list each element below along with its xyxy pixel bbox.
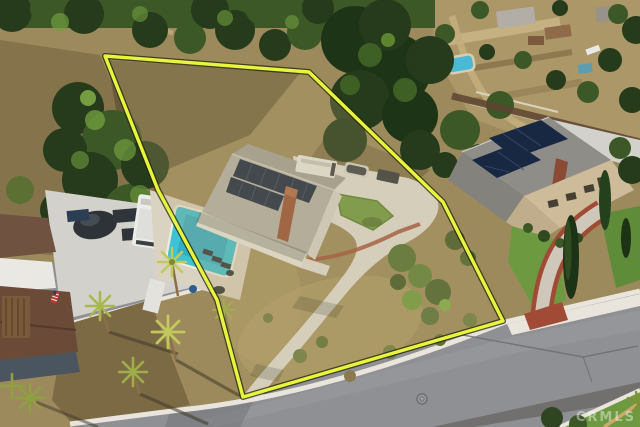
manhole-cover	[417, 394, 427, 404]
slope-shrub	[6, 176, 34, 204]
watermark: CRMLS	[576, 410, 636, 425]
shrub	[344, 370, 356, 382]
aerial-photo: CRMLS	[0, 0, 640, 427]
boat	[67, 209, 90, 222]
pool-umbrella	[189, 285, 197, 293]
distant-shed	[528, 36, 544, 45]
aerial-photo-stage: CRMLS	[0, 0, 640, 427]
corner-tree	[609, 137, 631, 159]
neighbor-roof-plane	[0, 214, 56, 258]
